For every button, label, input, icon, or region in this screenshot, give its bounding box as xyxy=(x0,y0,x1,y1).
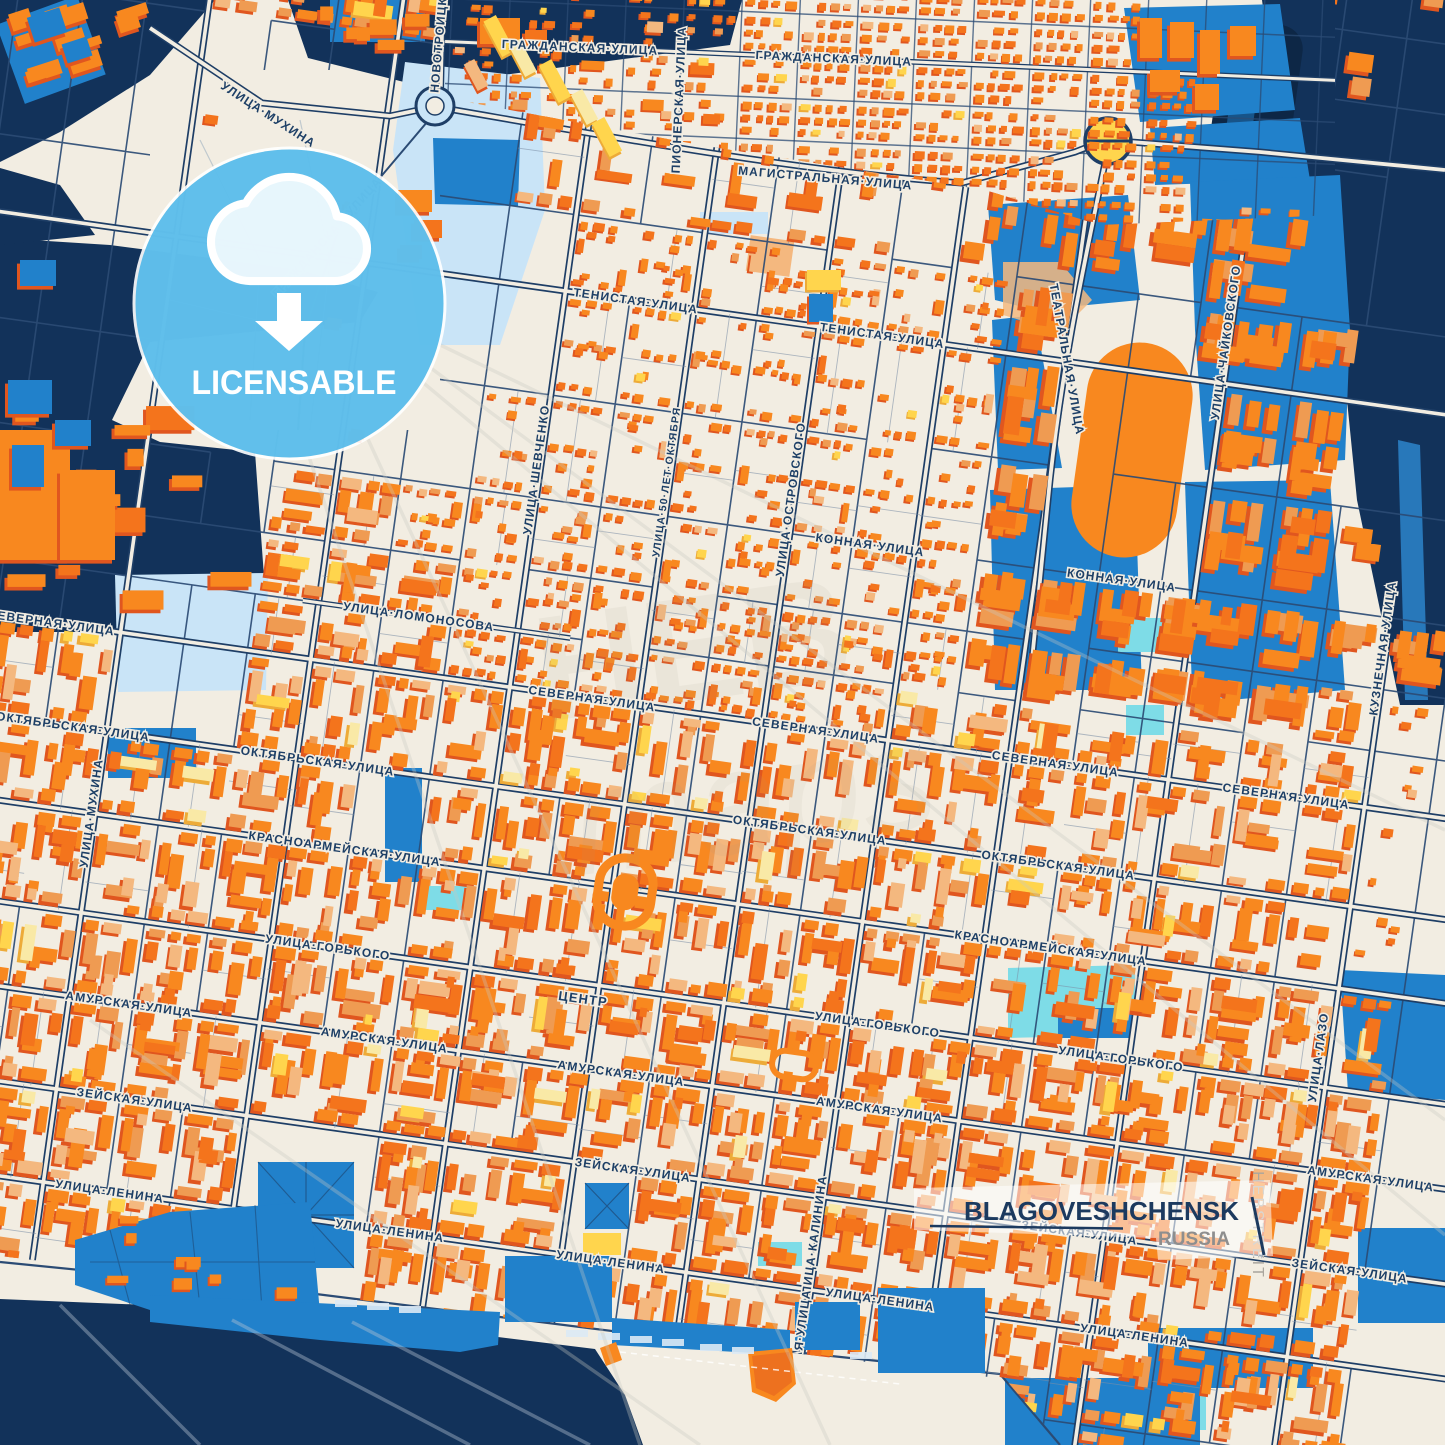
svg-text:BLAGOVESHCHENSK: BLAGOVESHCHENSK xyxy=(964,1196,1239,1226)
svg-text:LICENSABLE: LICENSABLE xyxy=(192,364,397,402)
svg-text:RUSSIA: RUSSIA xyxy=(1158,1229,1230,1250)
